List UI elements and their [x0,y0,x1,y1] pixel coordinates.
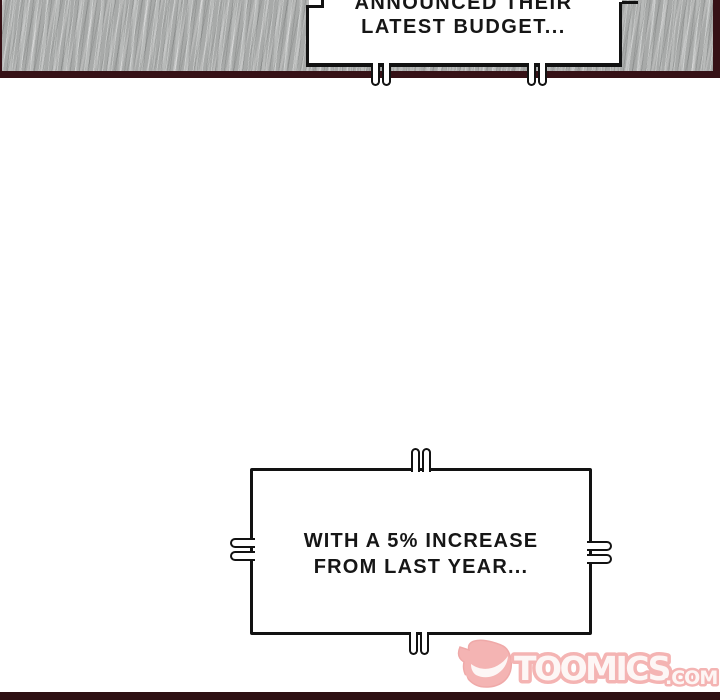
bubble-border-segment [306,63,623,67]
comic-page: ANNOUNCED THEIR LATEST BUDGET... WITH A … [0,0,720,700]
bottom-bubble-line1: WITH A 5% INCREASE [304,528,539,554]
toomics-domain: .COM [665,667,717,689]
toomics-mascot-icon [458,640,511,687]
top-bubble-line2: LATEST BUDGET... [305,15,622,39]
bubble-connector-icon [587,541,612,564]
bubble-connector-icon [411,448,431,472]
bottom-bubble-text: WITH A 5% INCREASE FROM LAST YEAR... [304,528,539,580]
toomics-wordmark: TOOMICS [514,649,670,688]
bubble-connector-icon [527,63,547,86]
top-bubble-text: ANNOUNCED THEIR LATEST BUDGET... [305,0,622,39]
bottom-speech-bubble: WITH A 5% INCREASE FROM LAST YEAR... [250,468,592,635]
bubble-connector-icon [230,538,255,561]
top-bubble-line1: ANNOUNCED THEIR [305,0,622,15]
next-panel-border [0,692,720,700]
toomics-logo: TOOMICS .COM [456,637,720,693]
bubble-border-segment [622,1,638,5]
bubble-connector-icon [371,63,391,86]
bubble-connector-icon [409,632,429,655]
bottom-bubble-line2: FROM LAST YEAR... [304,554,539,580]
